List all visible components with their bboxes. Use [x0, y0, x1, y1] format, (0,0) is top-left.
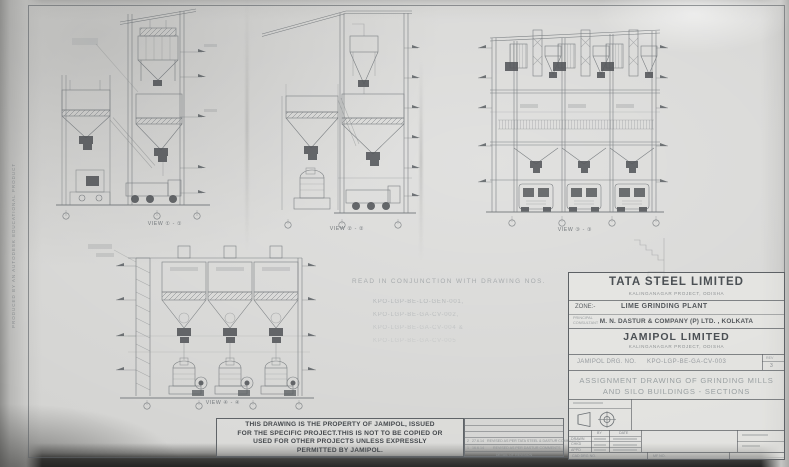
- title-block-divider: [569, 300, 784, 301]
- disclaimer-line: PERMITTED BY JAMIPOL.: [217, 447, 463, 456]
- bottom-strip-divider: [647, 452, 648, 459]
- drawing-number-value: KPO-LGP-BE-GA-CV-003: [647, 359, 726, 365]
- consultant-name: M. N. DASTUR & COMPANY (P) LTD. , KOLKAT…: [569, 318, 784, 325]
- disclaimer-line: FOR THE SPECIFIC PROJECT.THIS IS NOT TO …: [217, 430, 463, 439]
- conjunction-drawing-no: KPO-LGP-BE-GA-CV-005: [373, 338, 456, 344]
- cad-drg-no-label: CAD DRG NO.: [572, 454, 596, 458]
- drawing-title-line2: AND SILO BUILDINGS - SECTIONS: [569, 387, 784, 396]
- disclaimer-line: THIS DRAWING IS THE PROPERTY OF JAMIPOL,…: [217, 421, 463, 430]
- company-subtitle: KALINGANAGAR PROJECT, ODISHA: [569, 291, 784, 296]
- revision-table-footer: DETAIL OF REVISION: [465, 453, 563, 457]
- rev-box-divider: [762, 354, 763, 370]
- revision-table: 2 27.6.14 REVISED AS PER TATA STEEL & DA…: [464, 418, 564, 457]
- illegible-text-smudge: [613, 444, 637, 446]
- owner-name: JAMIPOL LIMITED: [569, 331, 784, 343]
- sign-col-date: DATE: [619, 431, 628, 435]
- title-block-divider: [569, 452, 784, 453]
- property-disclaimer-box: THIS DRAWING IS THE PROPERTY OF JAMIPOL,…: [216, 418, 464, 457]
- revision-description: REVISED AS PER TATA STEEL & DASTUR COMME…: [487, 439, 579, 443]
- revision-date: 27.6.14: [472, 439, 484, 443]
- illegible-text-smudge: [594, 438, 606, 440]
- illegible-text-smudge: [613, 438, 637, 440]
- title-block-divider: [569, 370, 784, 371]
- view-2-drawing: [262, 11, 420, 228]
- view-1-label: VIEW ① - ①: [128, 221, 202, 227]
- sheet-size-box-divider: [737, 441, 784, 442]
- bottom-strip-divider: [729, 452, 730, 459]
- illegible-text-smudge: [594, 444, 606, 446]
- disclaimer-line: USED FOR OTHER PROJECTS UNLESS EXPRESSLY: [217, 438, 463, 447]
- rev-label: REV: [766, 356, 773, 360]
- illegible-text-smudge: [742, 445, 760, 447]
- view-1-drawing: [56, 9, 217, 219]
- title-block: TATA STEEL LIMITED KALINGANAGAR PROJECT,…: [568, 272, 785, 460]
- title-block-divider: [569, 354, 784, 355]
- drawing-number-label: JAMIPOL DRG. NO.: [577, 359, 636, 365]
- illegible-text-smudge: [613, 449, 637, 451]
- view-3-drawing: [478, 30, 668, 282]
- sign-table-divider: [641, 430, 642, 452]
- company-name: TATA STEEL LIMITED: [569, 276, 784, 288]
- symbol-cell-divider: [569, 408, 631, 409]
- zone-value: LIME GRINDING PLANT: [621, 303, 708, 310]
- owner-subtitle: KALINGANAGAR PROJECT, ODISHA: [569, 344, 784, 349]
- view-3-label: VIEW ③ - ③: [538, 227, 612, 233]
- sign-row-appd: APPD: [571, 448, 581, 452]
- conjunction-drawing-no: KPO-LGP-BE-LO-GEN-001,: [373, 299, 464, 305]
- photographed-engineering-drawing: PRODUCED BY AN AUTODESK EDUCATIONAL PROD…: [0, 0, 789, 467]
- sign-row-drawn: DRAWN: [571, 437, 584, 441]
- revision-row-divider: [465, 431, 563, 432]
- autodesk-watermark: PRODUCED BY AN AUTODESK EDUCATIONAL PROD…: [11, 148, 16, 328]
- conjunction-drawing-no: KPO-LGP-BE-GA-CV-004 &: [373, 325, 463, 331]
- view-4-label: VIEW ④ - ④: [186, 400, 260, 406]
- illegible-text-smudge: [573, 402, 603, 404]
- drawing-title-line1: ASSIGNMENT DRAWING OF GRINDING MILLS: [569, 376, 784, 385]
- conjunction-drawing-no: KPO-LGP-BE-GA-CV-002,: [373, 312, 459, 318]
- rev-box-divider: [762, 361, 784, 362]
- view-2-label: VIEW ② - ②: [310, 226, 384, 232]
- illegible-text-smudge: [594, 449, 606, 451]
- revision-number: 2: [467, 439, 469, 443]
- revision-date: 16.6.14: [472, 446, 484, 450]
- view-4-drawing: [88, 244, 316, 409]
- sign-row-chkd: CHKD: [571, 442, 581, 446]
- sign-col-by: BY: [597, 431, 602, 435]
- illegible-text-smudge: [742, 434, 768, 436]
- zone-label: ZONE:-: [575, 304, 595, 310]
- revision-number: 1: [467, 446, 469, 450]
- title-block-divider: [569, 399, 784, 400]
- revision-row-divider: [465, 425, 563, 426]
- rev-value: 3: [770, 363, 773, 369]
- conjunction-note-heading: READ IN CONJUNCTION WITH DRAWING NOS.: [352, 278, 546, 285]
- title-block-divider: [569, 328, 784, 329]
- third-angle-projection-icon: [574, 411, 628, 429]
- mf-no-label: MF NO.: [653, 454, 666, 458]
- title-block-divider: [569, 314, 784, 315]
- symbol-cell-divider: [631, 399, 632, 430]
- revision-description: REVISED AS PER DASTUR COMMENTS: [493, 446, 561, 450]
